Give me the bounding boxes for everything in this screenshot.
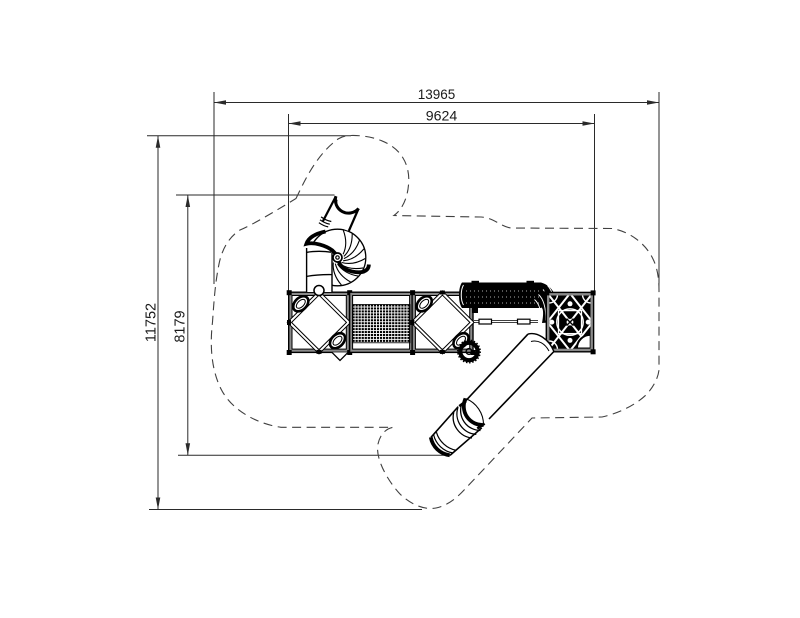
svg-text:13965: 13965 (418, 87, 456, 102)
svg-text:8179: 8179 (172, 310, 188, 342)
svg-text:11752: 11752 (143, 303, 159, 342)
svg-text:9624: 9624 (426, 109, 458, 124)
